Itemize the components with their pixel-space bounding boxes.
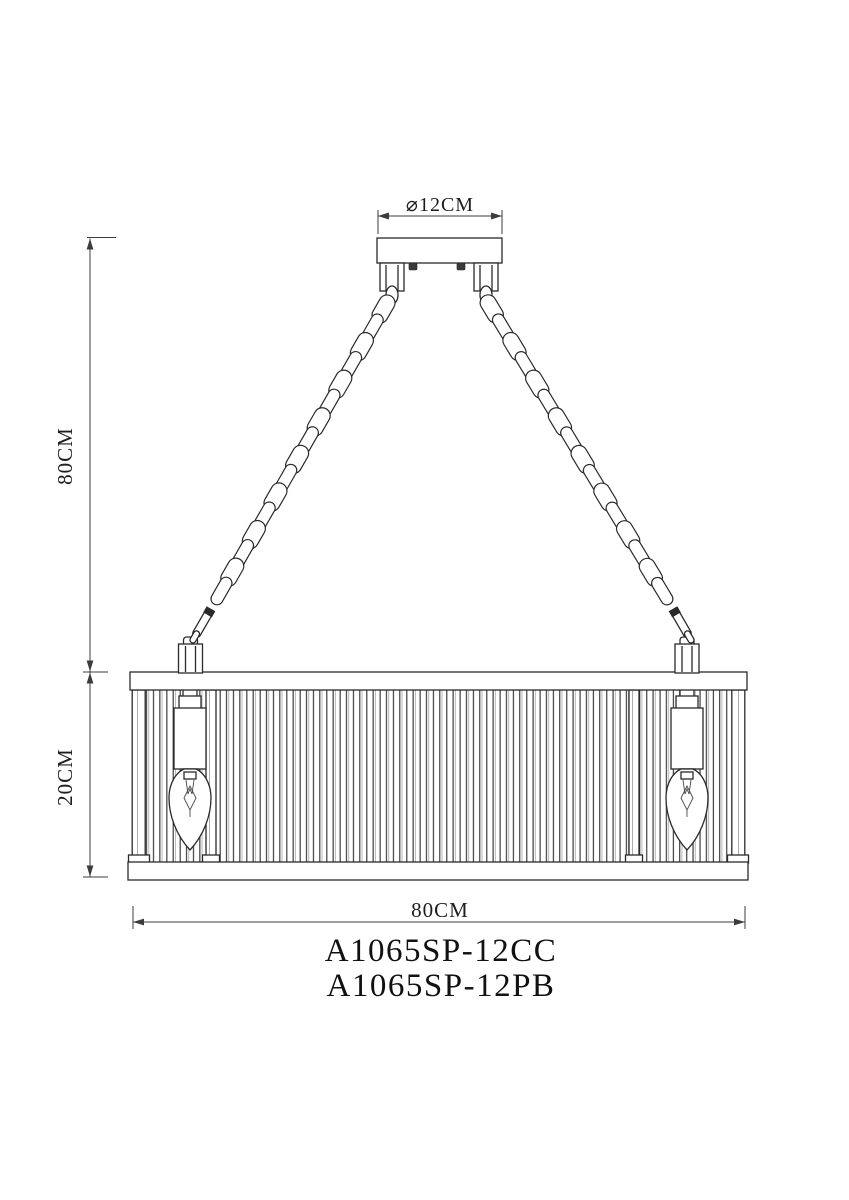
chandelier-dimension-drawing: ⌀12CM bbox=[0, 0, 849, 1200]
canopy-plate bbox=[377, 238, 502, 263]
model-numbers: A1065SP-12CC A1065SP-12PB bbox=[325, 933, 558, 1004]
screw-icon bbox=[457, 263, 465, 270]
candle-bulb-right bbox=[666, 687, 708, 850]
suspension-height-label: 80CM bbox=[53, 427, 77, 485]
right-chain-links bbox=[477, 292, 675, 607]
left-arrow-icon bbox=[378, 213, 389, 220]
ceiling-plate bbox=[377, 238, 502, 304]
candle-bulb-left bbox=[169, 687, 211, 850]
left-arrow-icon bbox=[133, 919, 144, 926]
right-arrow-icon bbox=[734, 919, 745, 926]
chain-mount-right bbox=[675, 637, 699, 673]
canopy-diameter-dimension: ⌀12CM bbox=[378, 194, 502, 234]
up-arrow-icon bbox=[87, 673, 94, 684]
shade-width-label: 80CM bbox=[411, 898, 469, 922]
model-number-2: A1065SP-12PB bbox=[327, 968, 556, 1004]
screw-icon bbox=[409, 263, 417, 270]
chain-link bbox=[209, 575, 234, 607]
top-band bbox=[130, 672, 747, 690]
height-dimension: 80CM 20CM bbox=[53, 238, 116, 878]
left-chain-connector bbox=[187, 606, 215, 645]
model-number-1: A1065SP-12CC bbox=[325, 933, 558, 969]
right-arrow-icon bbox=[491, 213, 502, 220]
shade-drum bbox=[128, 637, 749, 880]
up-arrow-icon bbox=[87, 239, 94, 250]
canopy-diameter-label: ⌀12CM bbox=[406, 194, 474, 216]
down-arrow-icon bbox=[87, 661, 94, 672]
down-arrow-icon bbox=[87, 866, 94, 877]
technical-drawing-page: ⌀12CM bbox=[0, 0, 849, 1200]
chain-link bbox=[649, 575, 675, 607]
left-chain-links bbox=[209, 292, 398, 607]
width-dimension: 80CM bbox=[133, 898, 745, 929]
shade-height-label: 20CM bbox=[53, 748, 77, 806]
crystal-rod-shade bbox=[132, 690, 745, 862]
